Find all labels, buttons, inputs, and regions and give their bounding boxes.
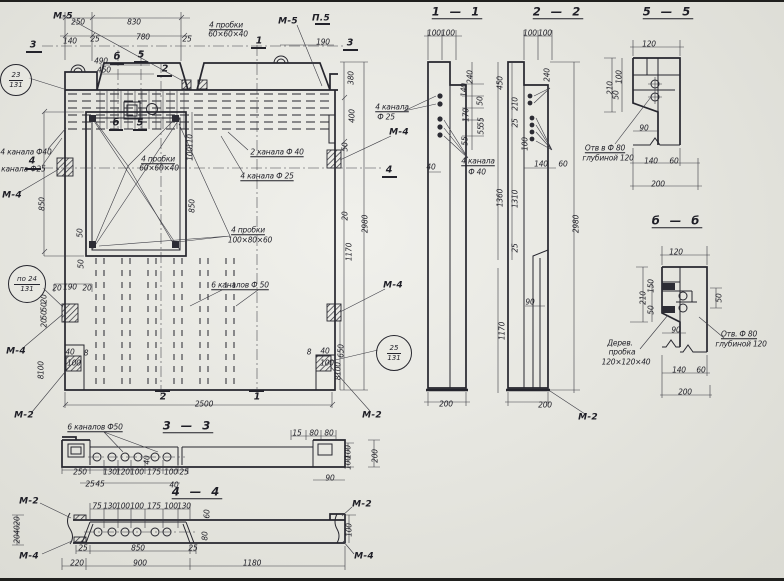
dim-label: 55 <box>461 136 469 145</box>
section-title: 5 — 5 <box>643 6 694 18</box>
dim-label: 175 <box>147 502 161 510</box>
dim-label: 100 <box>320 359 334 367</box>
dim-label: 190 <box>316 38 330 46</box>
dim-label: 850 <box>188 199 196 213</box>
cut-mark: 5 <box>138 50 144 60</box>
cut-mark: 4 <box>386 165 392 175</box>
dim-label: 210 <box>639 291 647 305</box>
dim-label: 50 <box>341 142 349 151</box>
dim-label: 450 <box>97 66 111 74</box>
dim-label: 780 <box>136 33 150 41</box>
dim-label: 25 <box>90 35 99 43</box>
dim-label: 2980 <box>572 215 580 233</box>
weld-mark: М-5 <box>53 13 73 22</box>
callout: 60×60×40 <box>139 164 179 172</box>
cut-mark: 3 <box>30 40 36 50</box>
weld-mark: М-4 <box>6 348 26 357</box>
dim-label: 55 <box>477 125 485 134</box>
drawing-sheet: 1 — 12 — 25 — 5б — б3 — 34 — 4М-5М-5П.5М… <box>0 0 784 581</box>
dim-label: 60 <box>558 160 567 168</box>
dim-label: 2500 <box>195 400 213 408</box>
dim-label: 40 <box>426 163 435 171</box>
dim-label: 240 <box>543 68 551 82</box>
callout: 4 пробки <box>141 155 175 163</box>
weld-mark: М-2 <box>19 498 39 507</box>
ref-circle-sheet: 131 <box>20 285 33 293</box>
dim-label: 20 <box>40 318 48 327</box>
dim-label: 40 <box>320 347 329 355</box>
dim-label: 100 <box>130 468 144 476</box>
dim-label: 2980 <box>361 215 369 233</box>
callout: 4 пробки <box>231 226 265 234</box>
dim-label: 50 <box>612 90 620 99</box>
dim-label: 100 <box>37 361 45 375</box>
callout: 4 канала Ф 25 <box>240 172 293 180</box>
dim-label: 100 <box>441 29 455 37</box>
dim-label: 140 <box>63 37 77 45</box>
dim-label: 200 <box>371 449 379 463</box>
callout: 2 канала Ф 40 <box>250 148 303 156</box>
cut-mark: 1 <box>256 36 262 46</box>
section-6-6 <box>630 246 724 398</box>
weld-mark: М-2 <box>352 501 372 510</box>
cut-mark: 3 <box>347 38 353 48</box>
dim-label: 170 <box>462 108 470 122</box>
dim-label: 120 <box>642 40 656 48</box>
dim-label: 25 <box>182 35 191 43</box>
dim-label: 25 <box>511 243 519 252</box>
dim-label: 190 <box>63 283 77 291</box>
weld-mark: М-4 <box>354 553 374 562</box>
dim-label: 200 <box>538 401 552 409</box>
section-title: 2 — 2 <box>533 6 584 18</box>
dim-label: 150 <box>647 279 655 293</box>
dim-label: 100 <box>186 147 194 161</box>
weld-mark: М-4 <box>19 553 39 562</box>
dim-label: 850 <box>131 544 145 552</box>
dim-label: 50 <box>647 305 655 314</box>
dim-label: 75 <box>92 502 101 510</box>
callout: 60×60×40 <box>208 30 248 38</box>
section-1-1 <box>404 30 484 406</box>
callout: Ф 25 <box>377 113 395 121</box>
dim-label: 400 <box>348 109 356 123</box>
cut-mark: 2 <box>160 392 166 402</box>
dim-label: 8 <box>307 348 312 356</box>
weld-mark: М-4 <box>389 129 409 138</box>
section-title: 4 — 4 <box>172 486 223 498</box>
weld-mark: П.5 <box>312 15 330 24</box>
ref-circle-position: по 24 <box>14 275 40 284</box>
dim-label: 130 <box>103 502 117 510</box>
dim-label: 450 <box>496 76 504 90</box>
weld-mark: М-2 <box>362 412 382 421</box>
dim-label: 25 <box>78 544 87 552</box>
dim-label: 240 <box>466 70 474 84</box>
dim-label: 900 <box>133 559 147 567</box>
callout: 6 каналов Ф 50 <box>211 281 269 289</box>
dim-label: 110 <box>186 134 194 148</box>
dim-label: 45 <box>95 480 104 488</box>
dim-label: 100 <box>427 29 441 37</box>
dim-label: 130 <box>103 468 117 476</box>
dim-label: 100 <box>344 456 352 470</box>
callout: Отв в Ф 80 <box>585 144 625 152</box>
dim-label: 490 <box>94 57 108 65</box>
dim-label: 50 <box>77 259 85 268</box>
dim-label: 40 <box>13 525 21 534</box>
callout: 100×80×60 <box>228 236 272 244</box>
dim-label: 90 <box>639 124 648 132</box>
dim-label: 40 <box>143 455 151 464</box>
dim-label: 1170 <box>345 243 353 261</box>
callout: 4 канала Ф25 <box>0 165 46 173</box>
dim-label: 210 <box>511 97 519 111</box>
callout: Дерев. <box>607 339 632 347</box>
dim-label: 100 <box>130 502 144 510</box>
dim-label: 830 <box>127 18 141 26</box>
cut-mark: б <box>113 118 119 128</box>
position-ref-circle: 23131 <box>0 64 32 96</box>
weld-mark: М-2 <box>578 414 598 423</box>
dim-label: 90 <box>671 326 680 334</box>
dim-label: 120 <box>669 248 683 256</box>
dim-label: 100 <box>523 29 537 37</box>
dim-label: 60 <box>669 157 678 165</box>
cut-mark: б <box>114 52 120 62</box>
dim-label: 140 <box>534 160 548 168</box>
drawing-linework <box>0 0 784 581</box>
callout: 4 пробки <box>209 21 243 29</box>
dim-label: 90 <box>325 474 334 482</box>
callout: Ф 40 <box>468 168 486 176</box>
dim-label: 1360 <box>496 189 504 207</box>
dim-label: 8 <box>84 349 89 357</box>
dim-label: 25 <box>85 480 94 488</box>
weld-mark: М-4 <box>2 192 22 201</box>
dim-label: 140 <box>644 157 658 165</box>
dim-label: 130 <box>177 502 191 510</box>
callout: 4 канала <box>375 103 409 111</box>
dim-label: 175 <box>147 468 161 476</box>
dim-label: 100 <box>67 359 81 367</box>
dim-label: 100 <box>164 502 178 510</box>
dim-label: 140 <box>672 366 686 374</box>
dim-label: 200 <box>439 400 453 408</box>
dim-label: 100 <box>164 468 178 476</box>
dim-label: 80 <box>201 531 209 540</box>
ref-circle-position: 23 <box>9 71 24 80</box>
weld-mark: М-4 <box>383 282 403 291</box>
dim-label: 120 <box>116 468 130 476</box>
dim-label: 200 <box>678 388 692 396</box>
cut-mark: 5 <box>137 118 143 128</box>
dim-label: 60 <box>203 509 211 518</box>
dim-label: 1180 <box>243 559 261 567</box>
dim-label: 100 <box>615 70 623 84</box>
dim-label: 20 <box>52 284 61 292</box>
callout: пробка <box>609 348 636 356</box>
section-4-4 <box>12 503 356 570</box>
dim-label: 1310 <box>511 190 519 208</box>
ref-circle-position: 25 <box>387 344 402 353</box>
dim-label: 25 <box>511 118 519 127</box>
cut-mark: 2 <box>162 64 168 74</box>
dim-label: 650 <box>337 344 345 358</box>
dim-label: 220 <box>70 559 84 567</box>
section-title: 3 — 3 <box>163 420 214 432</box>
dim-label: 8 <box>37 375 45 380</box>
section-5-5 <box>604 40 702 190</box>
dim-label: 850 <box>38 197 46 211</box>
callout: 120×120×40 <box>602 358 651 366</box>
dim-label: 380 <box>347 71 355 85</box>
dim-label: 140 <box>460 83 468 97</box>
dim-label: 100 <box>521 137 529 151</box>
dim-label: 15 <box>292 429 301 437</box>
dim-label: 40 <box>65 348 74 356</box>
section-title: 1 — 1 <box>432 6 483 18</box>
callout: глубиной 120 <box>715 340 766 348</box>
dim-label: 1170 <box>498 322 506 340</box>
dim-label: 20 <box>13 534 21 543</box>
dim-label: 100 <box>345 523 353 537</box>
dim-label: 80 <box>324 429 333 437</box>
weld-mark: М-2 <box>14 412 34 421</box>
dim-label: 50 <box>76 228 84 237</box>
dim-label: 250 <box>71 18 85 26</box>
dim-label: 25 <box>179 468 188 476</box>
callout: 4 канала <box>461 157 495 165</box>
dim-label: 20 <box>82 284 91 292</box>
dim-label: 50 <box>715 293 723 302</box>
position-ref-circle: 25131 <box>376 335 412 371</box>
dim-label: 100 <box>334 362 342 376</box>
dim-label: 50 <box>476 96 484 105</box>
ref-circle-sheet: 131 <box>387 354 400 362</box>
callout: 6 каналов Ф50 <box>67 423 122 431</box>
dim-label: 100 <box>116 502 130 510</box>
dim-label: 80 <box>309 429 318 437</box>
ref-circle-sheet: 131 <box>9 81 22 89</box>
weld-mark: М-5 <box>278 18 298 27</box>
dim-label: 20 <box>13 516 21 525</box>
section-title: б — б <box>652 215 703 227</box>
dim-label: 200 <box>651 180 665 188</box>
dim-label: 20 <box>341 211 349 220</box>
dim-label: 40 <box>169 481 178 489</box>
callout: Отв. Ф 80 <box>721 330 757 338</box>
dim-label: 90 <box>525 298 534 306</box>
dim-label: 8 <box>334 376 342 381</box>
dim-label: 25 <box>188 544 197 552</box>
dim-label: 250 <box>73 468 87 476</box>
dim-label: 60 <box>696 366 705 374</box>
cut-mark: 1 <box>254 392 260 402</box>
dim-label: 100 <box>538 29 552 37</box>
callout: глубиной 120 <box>582 154 633 162</box>
position-ref-circle: по 24131 <box>8 265 46 303</box>
callout: 4 канала Ф40 <box>0 148 51 156</box>
